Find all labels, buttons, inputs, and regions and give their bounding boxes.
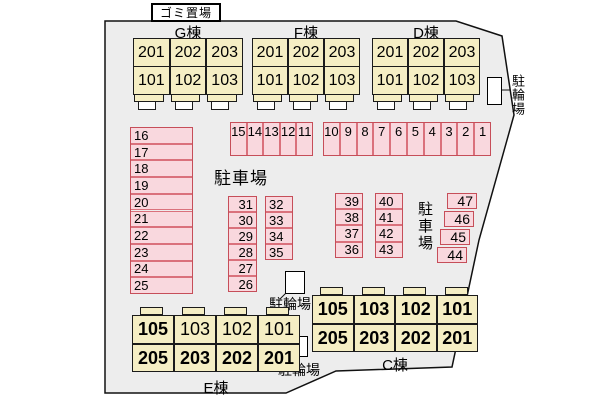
room-cell: 201 — [372, 38, 408, 67]
room-cell: 201 — [258, 344, 300, 372]
room-cell: 102 — [408, 66, 444, 95]
room-cell: 103 — [174, 315, 216, 344]
entrance-step — [138, 101, 156, 110]
garbage-area-box: ゴミ置場 — [151, 3, 221, 22]
entrance-tab — [140, 307, 163, 315]
room-cell: 105 — [312, 295, 354, 324]
room-cell: 102 — [395, 295, 437, 324]
room-cell: 202 — [288, 38, 324, 67]
parking-space: 36 — [335, 242, 363, 258]
room-cell: 101 — [372, 66, 408, 95]
entrance-tab — [362, 287, 385, 295]
entrance-step — [293, 101, 311, 110]
room-cell: 101 — [437, 295, 479, 324]
room-cell: 101 — [133, 66, 170, 95]
parking-space: 24 — [130, 261, 193, 278]
parking-space: 32 — [265, 196, 293, 212]
parking-space: 21 — [130, 211, 193, 228]
entrance-step — [211, 101, 229, 110]
entrance-tab — [445, 287, 468, 295]
room-cell: 101 — [252, 66, 288, 95]
parking-space: 38 — [335, 209, 363, 225]
parking-lot-label-east: 駐車場 — [414, 201, 435, 259]
room-cell: 203 — [354, 324, 396, 352]
entrance-step — [257, 101, 275, 110]
parking-space: 12 — [280, 122, 297, 156]
parking-space: 33 — [265, 212, 293, 228]
entrance-tab — [224, 307, 247, 315]
room-cell: 202 — [395, 324, 437, 352]
room-cell: 202 — [170, 38, 207, 67]
room-cell: 101 — [258, 315, 300, 344]
room-cell: 202 — [216, 344, 258, 372]
room-cell: 102 — [170, 66, 207, 95]
room-cell: 201 — [252, 38, 288, 67]
room-cell: 203 — [206, 38, 243, 67]
parking-space: 30 — [228, 212, 257, 228]
parking-space: 31 — [228, 196, 257, 212]
parking-space: 27 — [228, 260, 257, 276]
entrance-tab — [182, 307, 205, 315]
bicycle-parking-box — [487, 77, 502, 105]
parking-space: 37 — [335, 225, 363, 241]
room-cell: 203 — [444, 38, 480, 67]
parking-space: 4 — [424, 122, 441, 156]
parking-space: 5 — [407, 122, 424, 156]
parking-space: 29 — [228, 228, 257, 244]
parking-space: 8 — [357, 122, 374, 156]
parking-space: 44 — [437, 247, 467, 263]
parking-lot-label-west: 駐車場 — [214, 164, 268, 189]
parking-space: 35 — [265, 244, 293, 260]
entrance-tab — [403, 287, 426, 295]
parking-space: 18 — [130, 160, 193, 177]
building-label: C棟 — [365, 354, 425, 375]
parking-space: 43 — [375, 242, 403, 258]
parking-space: 39 — [335, 193, 363, 209]
room-cell: 203 — [324, 38, 360, 67]
bicycle-parking-box — [285, 271, 305, 294]
parking-space: 23 — [130, 244, 193, 261]
parking-space: 28 — [228, 244, 257, 260]
parking-space: 22 — [130, 227, 193, 244]
parking-space: 25 — [130, 277, 193, 294]
room-cell: 103 — [324, 66, 360, 95]
parking-space: 14 — [247, 122, 264, 156]
parking-space: 34 — [265, 228, 293, 244]
parking-space: 2 — [457, 122, 474, 156]
building-label: E棟 — [186, 377, 246, 398]
room-cell: 205 — [132, 344, 174, 372]
room-cell: 203 — [174, 344, 216, 372]
parking-space: 11 — [296, 122, 313, 156]
parking-space: 16 — [130, 127, 193, 144]
room-cell: 103 — [444, 66, 480, 95]
entrance-tab — [266, 307, 289, 315]
entrance-tab — [320, 287, 343, 295]
parking-space: 3 — [441, 122, 458, 156]
parking-space: 46 — [444, 211, 474, 227]
room-cell: 201 — [437, 324, 479, 352]
parking-space: 40 — [375, 193, 403, 209]
parking-space: 13 — [263, 122, 280, 156]
room-cell: 202 — [408, 38, 444, 67]
room-cell: 205 — [312, 324, 354, 352]
parking-space: 47 — [447, 193, 477, 209]
entrance-step — [175, 101, 193, 110]
entrance-step — [329, 101, 347, 110]
entrance-step — [377, 101, 395, 110]
parking-space: 15 — [230, 122, 247, 156]
parking-space: 9 — [340, 122, 357, 156]
parking-space: 6 — [390, 122, 407, 156]
site-map: ゴミ置場 駐車場 駐車場 駐輪場 駐輪場 駐輪場 G棟2012022031011… — [0, 0, 600, 400]
room-cell: 105 — [132, 315, 174, 344]
parking-space: 45 — [440, 229, 470, 245]
parking-space: 42 — [375, 225, 403, 241]
parking-space: 7 — [373, 122, 390, 156]
garbage-area-label: ゴミ置場 — [160, 4, 212, 21]
room-cell: 201 — [133, 38, 170, 67]
parking-space: 41 — [375, 209, 403, 225]
bicycle-parking-label: 駐輪場 — [508, 74, 527, 122]
entrance-step — [449, 101, 467, 110]
room-cell: 103 — [354, 295, 396, 324]
parking-space: 19 — [130, 177, 193, 194]
parking-space: 20 — [130, 194, 193, 211]
parking-space: 17 — [130, 144, 193, 161]
parking-space: 26 — [228, 276, 257, 292]
parking-space: 10 — [323, 122, 340, 156]
parking-space: 1 — [474, 122, 491, 156]
entrance-step — [413, 101, 431, 110]
room-cell: 102 — [288, 66, 324, 95]
room-cell: 103 — [206, 66, 243, 95]
room-cell: 102 — [216, 315, 258, 344]
